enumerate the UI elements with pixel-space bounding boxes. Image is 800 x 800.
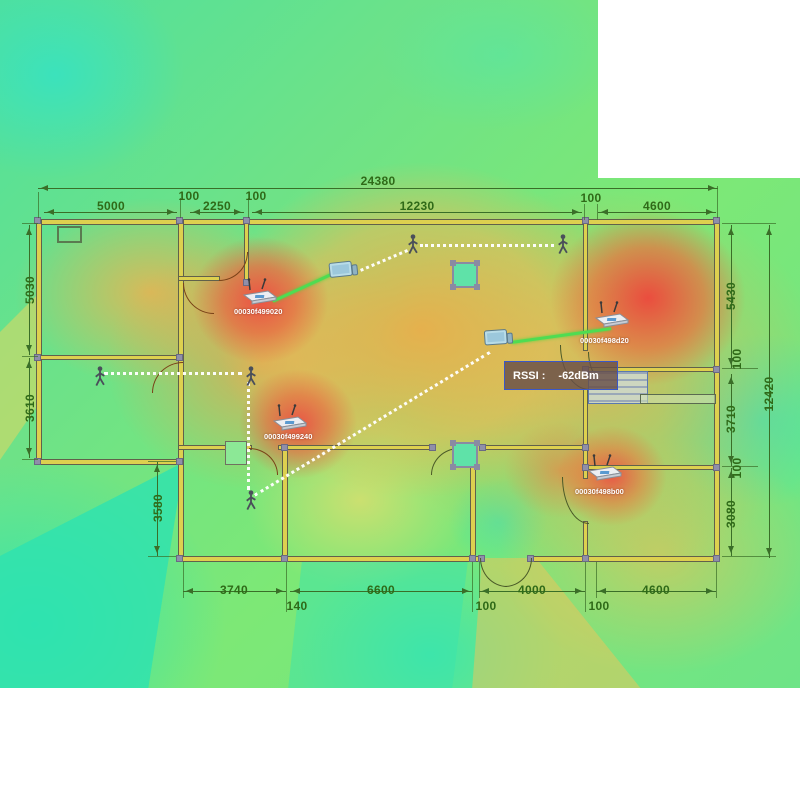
wall-segment (278, 445, 432, 450)
dim-right-h2: 3710 (724, 405, 738, 433)
long-table[interactable] (640, 394, 716, 404)
extension-line (716, 562, 717, 598)
dim-hall: 12230 (400, 199, 435, 213)
access-point-label: 00030f498b00 (575, 487, 624, 496)
dim-bottom-wall: 140 (287, 599, 308, 613)
dim-bottom-2: 6600 (367, 583, 395, 597)
extension-line (22, 356, 38, 357)
extension-line (584, 204, 585, 220)
wall-segment (178, 219, 184, 465)
wall-node (479, 444, 486, 451)
extension-line (38, 192, 39, 218)
wifi-coverage-simulator: 00030f499020 00030f499240 00030f498d20 0… (0, 0, 800, 800)
wall-node (713, 464, 720, 471)
cabinet[interactable] (225, 441, 247, 465)
access-point-label: 00030f499240 (264, 432, 312, 441)
dim-wall: 100 (589, 599, 610, 613)
dim-left-h1: 5030 (23, 276, 37, 304)
rssi-label: RSSI : (505, 370, 545, 382)
wall-node (176, 217, 183, 224)
wall-node (713, 217, 720, 224)
dim-wall: 100 (246, 189, 267, 203)
wall-node (176, 555, 183, 562)
table[interactable] (452, 262, 478, 288)
dim-wall: 100 (476, 599, 497, 613)
wall-node (582, 444, 589, 451)
wall-segment (178, 276, 220, 281)
wall-node (243, 217, 250, 224)
wall-node (713, 366, 720, 373)
person-icon[interactable] (556, 234, 570, 256)
dim-right-h3: 3080 (724, 500, 738, 528)
access-point-label: 00030f498d20 (580, 336, 629, 345)
access-point[interactable] (592, 299, 632, 334)
wall-node (469, 555, 476, 562)
wall-node (176, 458, 183, 465)
wall-segment (36, 219, 720, 225)
extension-line (585, 562, 586, 612)
table[interactable] (452, 442, 478, 468)
dim-bottom-4: 4600 (642, 583, 670, 597)
person-icon[interactable] (406, 234, 420, 256)
dimension-line (38, 188, 718, 189)
wall-node (713, 555, 720, 562)
dim-wall: 100 (730, 458, 744, 479)
access-point[interactable] (585, 452, 625, 487)
person-icon[interactable] (244, 366, 258, 388)
access-point-label: 00030f499020 (234, 307, 282, 316)
extension-line (22, 459, 38, 460)
wall-segment (482, 445, 587, 450)
wall-node (281, 444, 288, 451)
dim-wall: 100 (581, 191, 602, 205)
wall-node (176, 354, 183, 361)
wall-segment (36, 355, 184, 360)
dim-left-h2: 3610 (23, 394, 37, 422)
dim-bottom-1: 3740 (220, 583, 248, 597)
dim-wall: 100 (730, 349, 744, 370)
person-icon[interactable] (93, 366, 107, 388)
extension-line (472, 562, 473, 612)
extension-line (148, 461, 176, 462)
walk-path (420, 244, 554, 247)
extension-line (22, 223, 38, 224)
laptop-icon[interactable] (483, 327, 515, 354)
canvas-margin (598, 0, 800, 178)
rssi-value: -62dBm (558, 370, 598, 382)
dim-bottom-3: 4000 (518, 583, 546, 597)
walk-path (104, 372, 242, 375)
canvas-margin (0, 688, 800, 800)
wall-segment (36, 459, 184, 465)
wall-segment (178, 459, 184, 562)
dim-total-height: 12420 (762, 377, 776, 412)
wall-node (429, 444, 436, 451)
walk-path (247, 382, 250, 490)
wall-segment (36, 219, 42, 465)
wall-segment (528, 556, 720, 562)
dim-vestibule: 2250 (203, 199, 231, 213)
dim-wall: 100 (179, 189, 200, 203)
laptop-icon[interactable] (328, 259, 360, 287)
wall-node (281, 555, 288, 562)
rssi-tooltip: RSSI : -62dBm (504, 361, 618, 390)
dim-right-h1: 5430 (724, 282, 738, 310)
dim-total-width: 24380 (361, 174, 396, 188)
extension-line (722, 223, 776, 224)
wall-segment (714, 219, 720, 562)
wall-node (582, 555, 589, 562)
access-point[interactable] (240, 276, 280, 311)
person-icon[interactable] (244, 490, 258, 512)
dim-left-h3: 3580 (151, 494, 165, 522)
extension-line (148, 556, 176, 557)
wall-segment (178, 556, 484, 562)
dim-left-room: 5000 (97, 199, 125, 213)
wall-segment (282, 445, 288, 562)
wall-segment (244, 219, 249, 283)
dim-right-room: 4600 (643, 199, 671, 213)
window-box (57, 226, 82, 243)
